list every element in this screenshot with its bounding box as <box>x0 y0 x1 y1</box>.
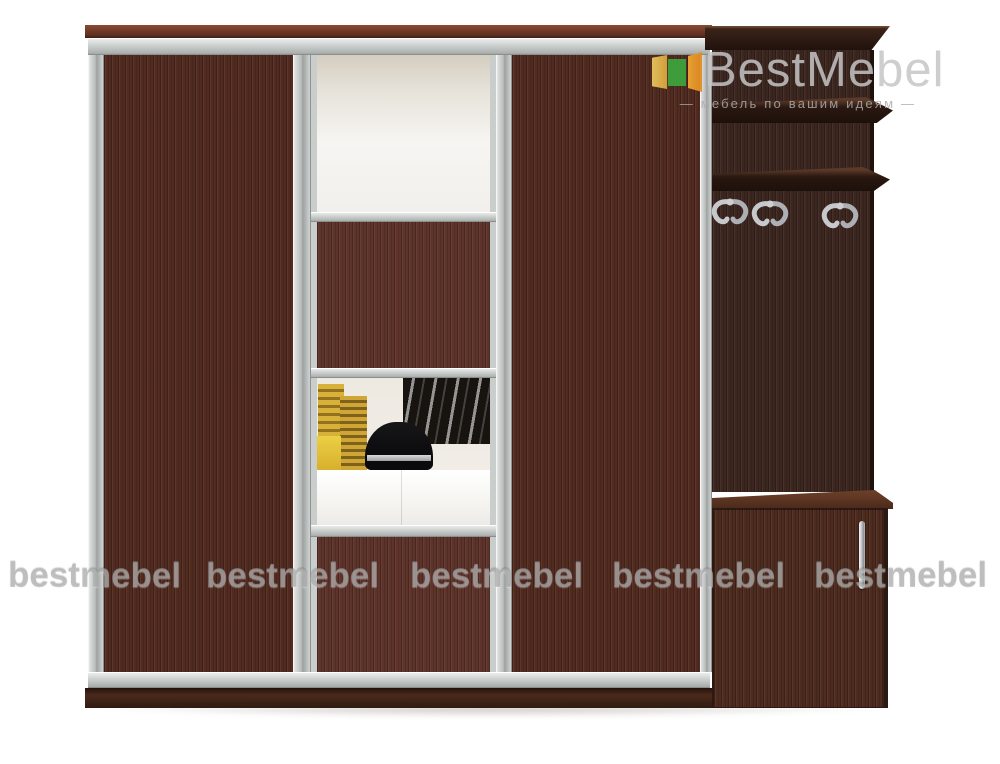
watermark: bestmebel <box>410 556 583 596</box>
wardrobe-plinth <box>85 688 712 708</box>
logo-door-left <box>652 55 667 89</box>
floor-shadow <box>84 707 894 718</box>
brand-name: BestMebel <box>704 42 945 98</box>
wardrobe-bottom-rail <box>88 672 710 688</box>
mirror-divider-3 <box>311 525 496 537</box>
watermark: bestmebel <box>612 556 785 596</box>
reflection-gold-stack-2 <box>340 396 367 470</box>
coat-hook-icon <box>710 196 750 234</box>
hall-cabinet-top <box>712 490 893 509</box>
mirror-reflection-section <box>317 378 490 525</box>
reflection-counter-seam <box>401 470 402 525</box>
coat-hook-icon <box>750 198 790 236</box>
wardrobe-top-rail <box>88 38 710 55</box>
watermark: bestmebel <box>8 556 181 596</box>
middle-wood-panel-upper <box>317 222 490 368</box>
product-image: BestMebel — мебель по вашим идеям — best… <box>0 0 1000 764</box>
wardrobe-logo-icon <box>652 52 702 92</box>
reflection-counter <box>317 470 490 525</box>
reflection-object-band <box>367 455 431 461</box>
brand-logo: BestMebel — мебель по вашим идеям — <box>652 46 952 112</box>
mirror-divider-2 <box>311 368 496 378</box>
logo-door-center <box>668 59 686 86</box>
coat-hook-icon <box>820 200 860 238</box>
watermark: bestmebel <box>206 556 379 596</box>
watermark: bestmebel <box>814 556 987 596</box>
wardrobe-top-strip <box>85 25 712 38</box>
mirror-upper-section <box>317 55 490 212</box>
brand-tagline: — мебель по вашим идеям — <box>648 96 948 111</box>
mirror-divider-1 <box>311 212 496 222</box>
logo-door-right <box>688 52 702 92</box>
reflection-gold-block <box>317 436 341 470</box>
